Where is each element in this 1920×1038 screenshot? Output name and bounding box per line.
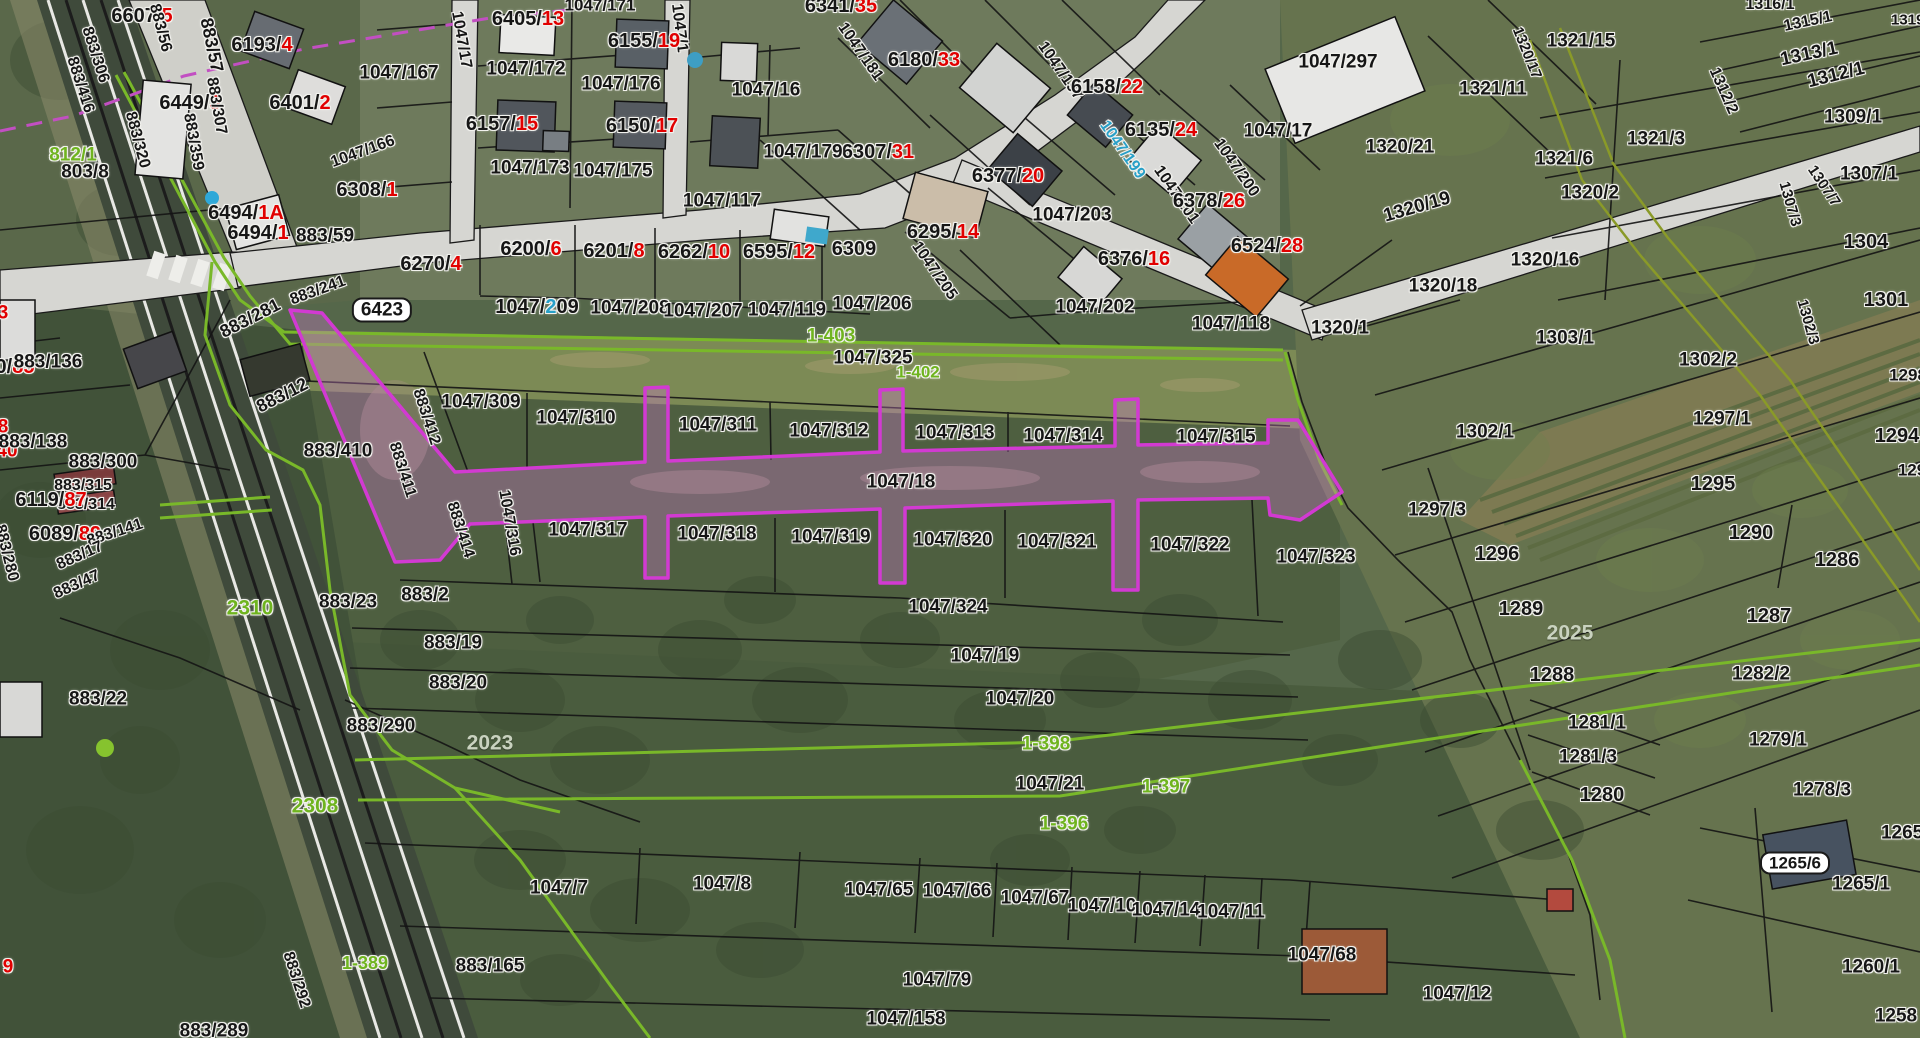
cadastral-map-viewport[interactable]: 6607/5883/56883/576193/4883/306883/41688… [0,0,1920,1038]
map-graphics [0,0,1920,1038]
